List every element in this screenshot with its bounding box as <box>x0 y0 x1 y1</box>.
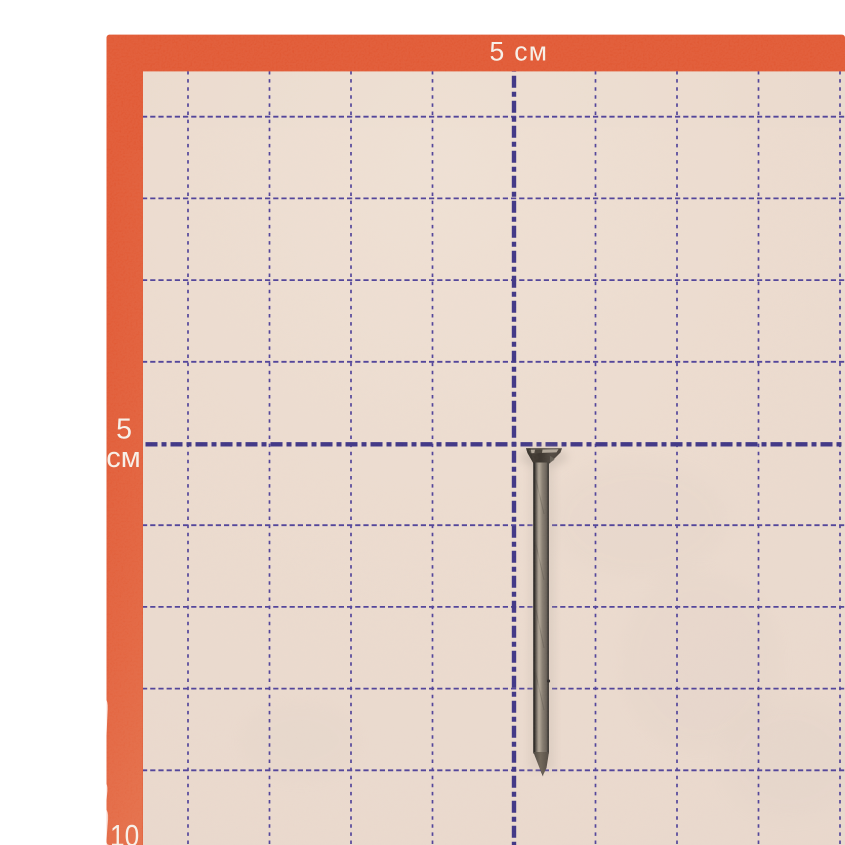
svg-text:5: 5 <box>116 414 132 446</box>
svg-text:5 см: 5 см <box>490 37 549 67</box>
svg-text:10: 10 <box>110 819 139 845</box>
svg-text:см: см <box>106 442 140 474</box>
